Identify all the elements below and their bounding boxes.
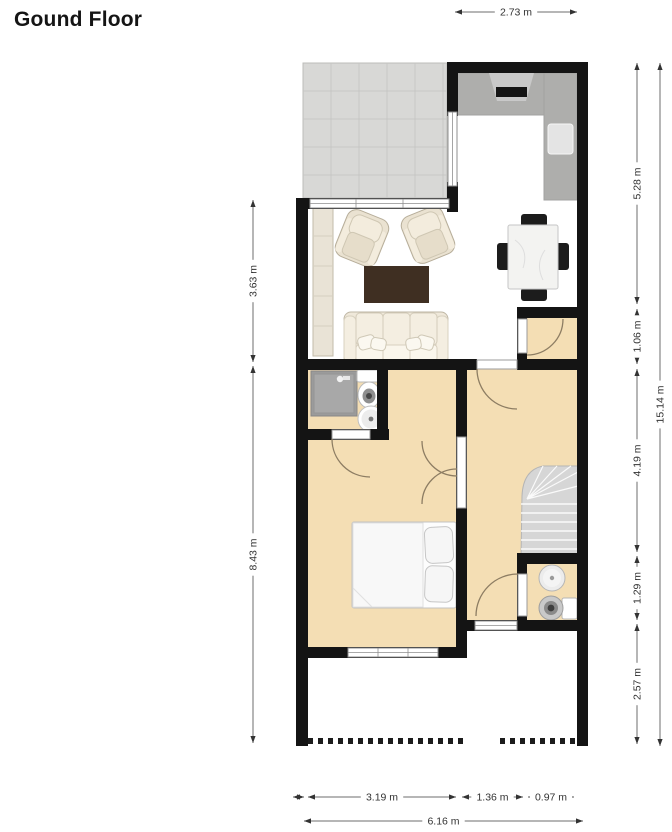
- dimension-label: 0.97 m: [535, 792, 567, 804]
- living-room-window: [310, 199, 449, 208]
- armchair: [332, 207, 392, 270]
- dimension-arrow: [462, 794, 469, 799]
- dimension-arrow: [297, 794, 304, 799]
- sideboard: [313, 206, 333, 356]
- staircase: [521, 466, 578, 558]
- dimension-arrow: [250, 200, 255, 207]
- dimension-label: 3.63 m: [248, 265, 260, 297]
- dimension-arrow: [304, 818, 311, 823]
- wc-basin: [539, 565, 565, 591]
- dimension-arrow: [308, 794, 315, 799]
- sofa-pillow: [405, 337, 422, 351]
- floor-plan-page: Gound Floor: [0, 0, 672, 832]
- wall-left: [296, 198, 308, 746]
- kitchen-terrace-window: [448, 112, 457, 186]
- coffee-rug: [364, 266, 429, 303]
- bed: [352, 522, 456, 608]
- shower-head-icon: [337, 376, 343, 382]
- dimension-arrow: [455, 9, 462, 14]
- dimension-label: 4.19 m: [632, 444, 644, 476]
- dimension-left-upper: 3.63 m: [247, 200, 260, 362]
- dimension-bottom-seg-3: 0.97 m: [528, 791, 574, 804]
- dimension-arrow: [634, 297, 639, 304]
- entrance-hall-floor: [522, 312, 582, 364]
- dimension-arrow: [634, 613, 639, 620]
- dining-table: [508, 225, 558, 289]
- dimension-arrow: [250, 736, 255, 743]
- dimension-arrow: [250, 366, 255, 373]
- dimension-right-seg-3: 4.19 m: [631, 369, 644, 552]
- dimension-label: 15.14 m: [655, 385, 667, 423]
- sofa-pillow: [370, 337, 387, 351]
- dimension-arrow: [634, 357, 639, 364]
- wall-bedroom-hall-divider: [456, 368, 467, 658]
- wall-kitchen-top: [447, 62, 588, 73]
- pillow: [424, 526, 454, 563]
- wall-terrace-divider-upper: [447, 62, 458, 116]
- dimension-left-lower: 8.43 m: [247, 366, 260, 743]
- dimension-arrow: [634, 63, 639, 70]
- dimension-right-seg-4: 1.29 m: [631, 556, 644, 620]
- sofa: [344, 312, 448, 364]
- dimension-bottom-wall-tick: [293, 794, 304, 799]
- dimension-top-width: 2.73 m: [455, 6, 577, 19]
- dining-chair: [521, 288, 547, 301]
- dimension-arrow: [634, 624, 639, 631]
- dimension-label: 2.73 m: [500, 7, 532, 19]
- wall-mid-right: [517, 359, 588, 370]
- pillow: [424, 566, 453, 603]
- dimension-label: 1.29 m: [632, 572, 644, 604]
- dining-set: [497, 214, 569, 301]
- garden-doorway: [475, 621, 517, 630]
- dimension-arrow: [634, 556, 639, 563]
- dimension-arrow: [657, 739, 662, 746]
- kitchen-sink: [548, 124, 573, 154]
- wc-toilet: [539, 596, 577, 620]
- dimension-right-seg-5: 2.57 m: [631, 624, 644, 744]
- dimension-label: 6.16 m: [427, 816, 459, 828]
- dimension-bottom-seg-1: 3.19 m: [308, 791, 456, 804]
- bedroom-window: [348, 648, 438, 657]
- dimension-arrow: [516, 794, 523, 799]
- dimension-label: 1.06 m: [632, 320, 644, 352]
- hob-vent: [496, 87, 527, 97]
- dimension-bottom-total: 6.16 m: [304, 815, 583, 828]
- wall-entrance-hall-top: [517, 307, 588, 318]
- dimension-arrow: [570, 9, 577, 14]
- dimension-arrow: [250, 355, 255, 362]
- floor-plan-drawing: 2.73 m3.63 m8.43 m5.28 m1.06 m4.19 m1.29…: [0, 0, 672, 832]
- dimension-bottom-seg-2: 1.36 m: [462, 791, 523, 804]
- dimension-right-seg-2: 1.06 m: [631, 309, 644, 364]
- dimension-arrow: [634, 545, 639, 552]
- dimension-label: 2.57 m: [632, 668, 644, 700]
- dimension-arrow: [449, 794, 456, 799]
- terrace-floor: [303, 63, 447, 198]
- dimension-arrow: [634, 369, 639, 376]
- armchair: [398, 204, 458, 267]
- dimension-label: 5.28 m: [632, 167, 644, 199]
- dimension-right-seg-1: 5.28 m: [631, 63, 644, 304]
- dimension-arrow: [634, 737, 639, 744]
- dimension-label: 8.43 m: [248, 538, 260, 570]
- dimension-label: 3.19 m: [366, 792, 398, 804]
- kitchen: [457, 73, 577, 200]
- dimension-label: 1.36 m: [476, 792, 508, 804]
- dimension-arrow: [657, 63, 662, 70]
- wall-right: [577, 62, 588, 746]
- dimension-right-total: 15.14 m: [654, 63, 667, 746]
- dimension-arrow: [576, 818, 583, 823]
- dimension-arrow: [634, 309, 639, 316]
